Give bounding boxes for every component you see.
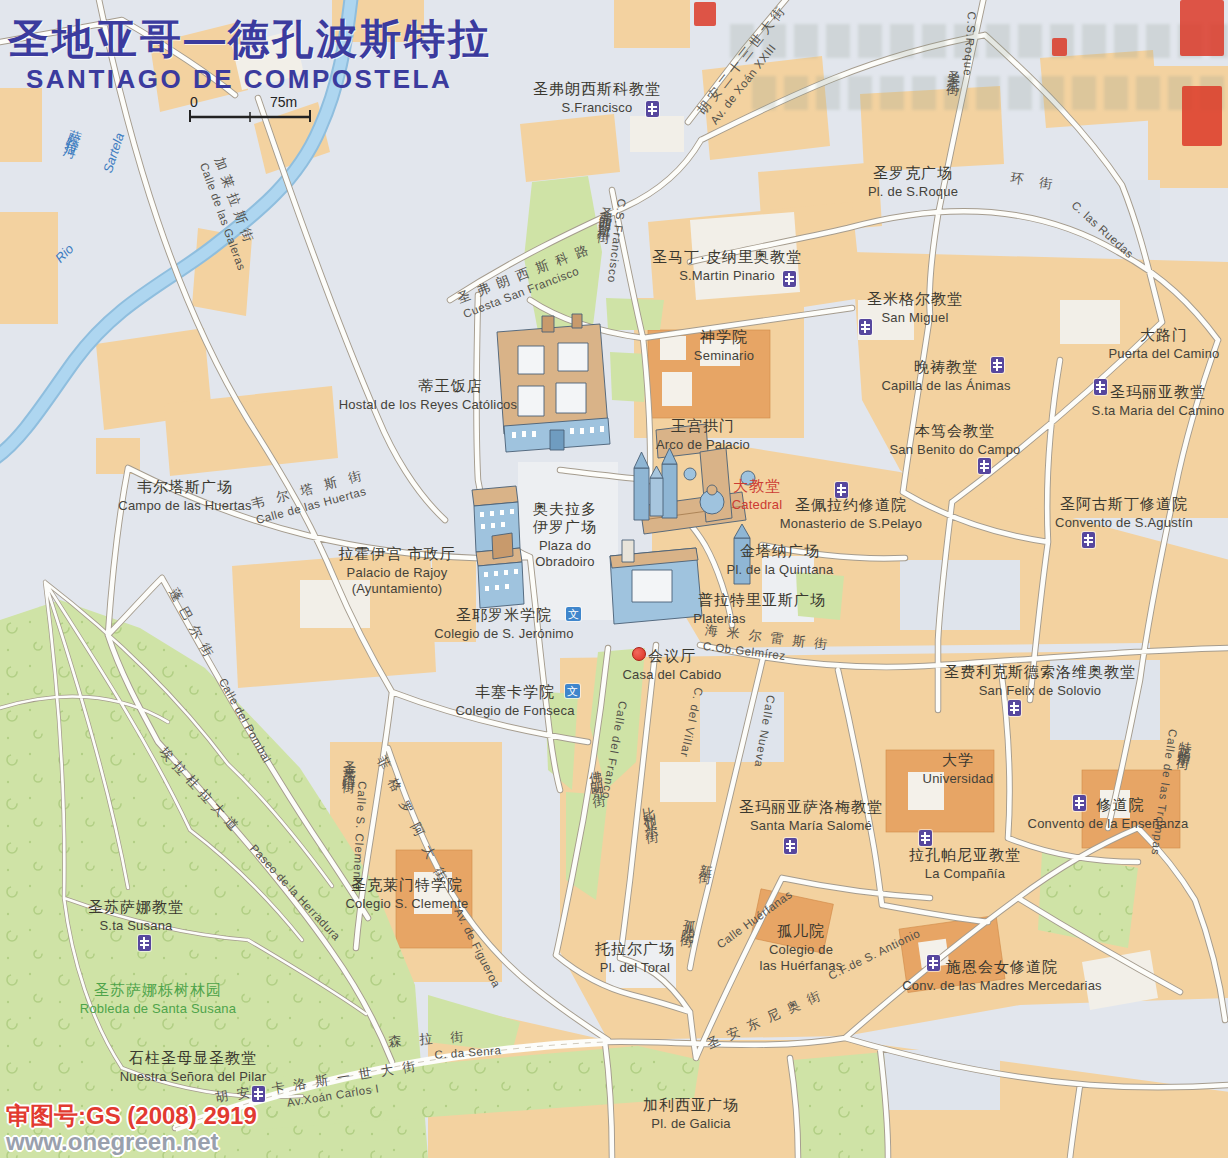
red-print-mark	[1182, 86, 1222, 146]
website-watermark: www.onegreen.net	[6, 1128, 218, 1156]
poi-san-benito: 本笃会教堂San Benito do Campo	[890, 422, 1021, 458]
poi-rajoy: 拉霍伊宫 市政厅 Palacio de Rajoy (Ayuntamiento)	[338, 545, 455, 596]
poi-robleda: 圣苏萨娜栎树林园Robleda de Santa Susana	[80, 981, 236, 1017]
poi-puerta-camino: 大路门Puerta del Camino	[1108, 326, 1219, 362]
church-icon	[784, 838, 797, 854]
poi-seminario: 神学院Seminario	[694, 328, 754, 364]
poi-col-huerfanas: 孤儿院 Colegio de las Huérfanas	[760, 922, 843, 973]
poi-col-clemente: 圣克莱门特学院Colegio S. Clemente	[345, 876, 468, 912]
red-print-mark	[1052, 38, 1067, 56]
poi-campo-huertas: 韦尔塔斯广场Campo de las Huertas	[118, 478, 251, 514]
church-icon	[646, 101, 659, 117]
map-title-zh: 圣地亚哥—德孔波斯特拉	[8, 12, 492, 67]
red-print-mark	[1180, 0, 1224, 56]
poi-san-felix: 圣费利克斯德索洛维奥教堂San Felix de Solovio	[944, 663, 1136, 699]
poi-s-francisco: 圣弗朗西斯科教堂S.Francisco	[533, 80, 661, 116]
poi-platerias: 普拉特里亚斯广场 Platerias	[693, 591, 830, 627]
street-label-huerfanas-zh: 孤儿院街	[681, 908, 699, 930]
poi-pl-quintana: 金塔纳广场Pl. de la Quintana	[727, 542, 834, 578]
poi-sta-susana: 圣苏萨娜教堂S.ta Susana	[88, 898, 184, 934]
poi-sta-maria-salome: 圣玛丽亚萨洛梅教堂Santa María Salomé	[739, 798, 883, 834]
poi-col-jeronimo: 圣耶罗米学院Colegio de S. Jerónimo	[434, 606, 574, 642]
poi-san-miguel: 圣米格尔教堂San Miguel	[867, 290, 963, 326]
church-icon	[859, 319, 872, 335]
culture-site-icon: 文	[565, 684, 580, 698]
church-icon	[835, 482, 848, 498]
poi-arco-palacio: 王宫拱门Arco de Palacio	[656, 417, 750, 453]
church-icon	[1008, 700, 1021, 716]
church-icon	[783, 271, 796, 287]
poi-convento-ensenanza: 修道院 Convento de la Enseñanza	[1028, 796, 1189, 832]
poi-s-martin-pinario: 圣马丁·皮纳里奥教堂S.Martin Pinario	[652, 248, 802, 284]
scale-bar-graphic	[186, 94, 318, 124]
poi-pl-s-roque: 圣罗克广场Pl. de S.Roque	[868, 164, 958, 200]
culture-site-icon: 文	[566, 607, 581, 621]
street-label-s-roque: C.S.Roque 圣罗克街	[945, 10, 978, 78]
church-icon	[978, 458, 991, 474]
church-icon	[1094, 379, 1107, 395]
map-title-en: SANTIAGO DE COMPOSTELA	[26, 64, 452, 95]
scale-zero: 0	[190, 94, 198, 110]
poi-obradoiro: 奥夫拉多 伊罗广场 Plaza do Obradoiro	[533, 500, 597, 569]
church-icon	[991, 357, 1004, 373]
poi-monasterio-pelayo: 圣佩拉约修道院Monasterio de S.Pelayo	[780, 496, 922, 532]
poi-hostal: 蒂王饭店 Hostal de los Reyes Católicos	[339, 377, 518, 413]
poi-sta-maria-camino: 圣玛丽亚教堂S.ta Maria del Camino	[1092, 383, 1225, 419]
street-label-nueva-zh: 新街	[698, 852, 715, 870]
poi-convento-agustin: 圣阿古斯丁修道院Convento de S.Agustín	[1055, 495, 1193, 531]
church-icon	[919, 830, 932, 846]
church-icon	[138, 935, 151, 951]
poi-pl-galicia: 加利西亚广场Pl. de Galicia	[643, 1096, 739, 1132]
poi-la-compania: 拉孔帕尼亚教堂La Compañía	[909, 846, 1021, 882]
poi-nuestra-pilar: 石柱圣母显圣教堂Nuestra Señora del Pilar	[120, 1049, 266, 1085]
church-icon	[927, 955, 940, 971]
street-label-villar-zh: 比利亚尔街	[638, 796, 657, 828]
scale-max: 75m	[270, 94, 297, 110]
city-map: 圣地亚哥—德孔波斯特拉 SANTIAGO DE COMPOSTELA 0 75m…	[0, 0, 1228, 1158]
print-bleed-artifact	[752, 76, 1228, 110]
print-bleed-artifact	[730, 24, 1228, 58]
red-print-mark	[694, 2, 716, 26]
poi-universidad: 大学Universidad	[923, 751, 994, 787]
scale-bar: 0 75m	[186, 94, 318, 124]
meeting-hall-marker-icon	[632, 647, 646, 661]
church-icon	[1073, 795, 1086, 811]
poi-catedral: 大教堂Catedral	[732, 477, 783, 513]
poi-pl-toral: 托拉尔广场Pl. del Toral	[595, 940, 675, 976]
church-icon	[1082, 532, 1095, 548]
poi-col-fonseca: 丰塞卡学院Colegio de Fonseca	[455, 683, 574, 719]
